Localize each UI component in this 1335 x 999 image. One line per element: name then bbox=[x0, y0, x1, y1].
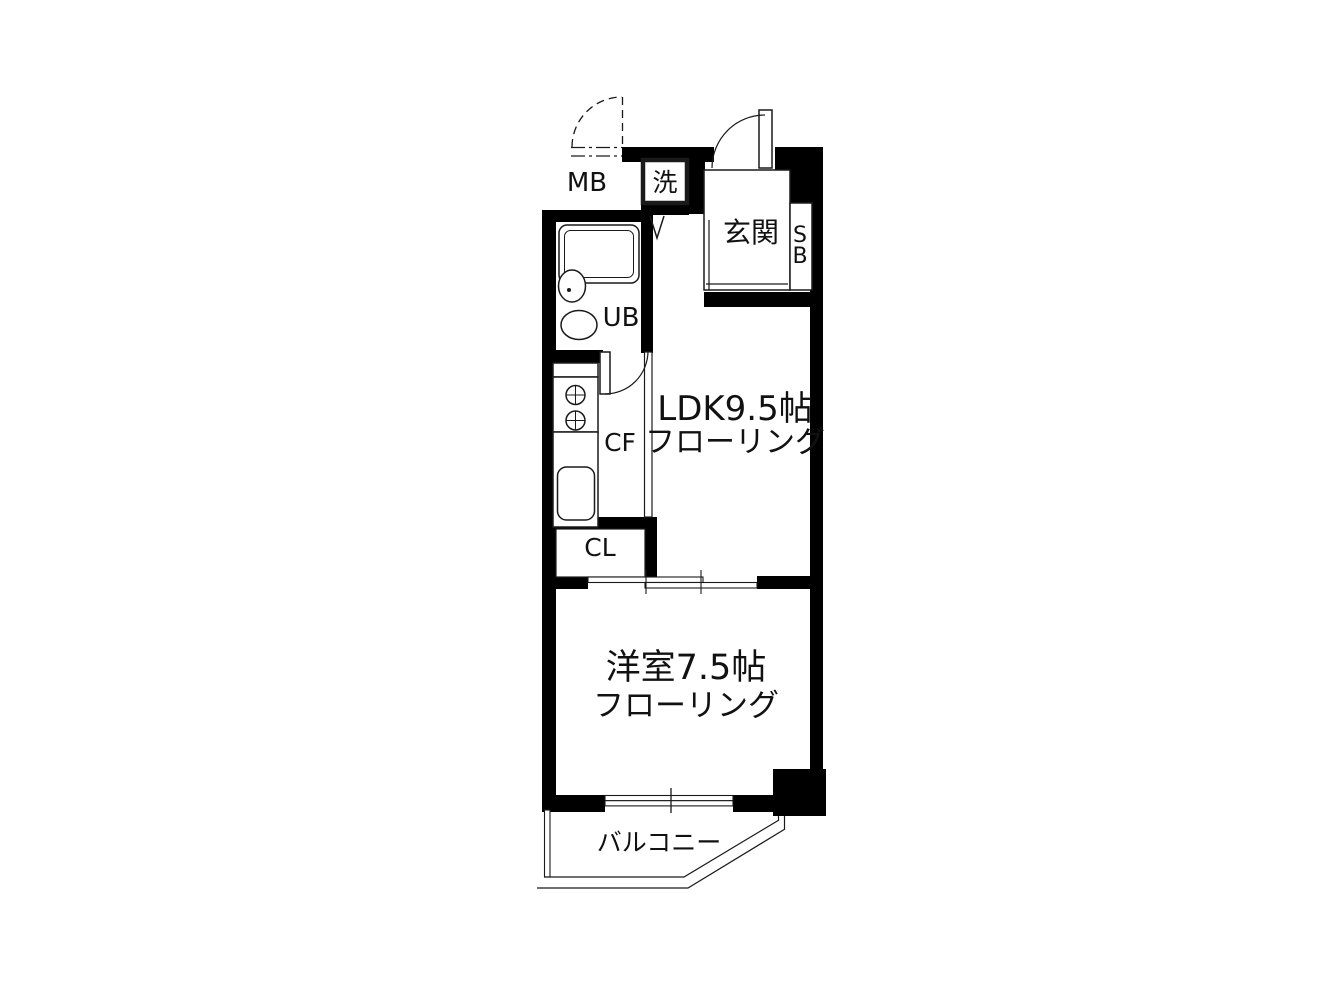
wall-bottom-right-block bbox=[773, 769, 826, 816]
wall-ub-right bbox=[641, 210, 653, 353]
label-ldk-flooring: フローリング bbox=[645, 425, 825, 460]
label-unit-bath: UB bbox=[603, 303, 640, 333]
wall-bottom-left bbox=[542, 795, 605, 812]
wall-washer-right bbox=[687, 158, 705, 214]
label-entrance: 玄関 bbox=[723, 216, 779, 249]
balcony-rail-left bbox=[545, 810, 551, 877]
label-shoe-box-b: B bbox=[792, 244, 807, 269]
label-western-room-flooring: フローリング bbox=[593, 688, 779, 724]
entrance-door-leaf bbox=[759, 110, 772, 168]
bath-sink bbox=[559, 270, 586, 302]
label-kitchen-cf: CF bbox=[604, 428, 636, 457]
label-meter-box: MB bbox=[567, 168, 607, 198]
wall-divider-left bbox=[542, 576, 588, 589]
floor-plan: MB 洗 玄関 S B UB LDK9.5帖 フローリング CF CL 洋室7.… bbox=[0, 0, 1335, 999]
bath-sink-drain bbox=[567, 288, 571, 292]
wall-divider-right bbox=[757, 576, 822, 589]
label-washer: 洗 bbox=[652, 168, 677, 197]
label-western-room-name: 洋室7.5帖 bbox=[606, 648, 767, 688]
wall-ub-top bbox=[542, 210, 653, 222]
floor-plan-svg: MB 洗 玄関 S B UB LDK9.5帖 フローリング CF CL 洋室7.… bbox=[0, 0, 1335, 999]
kitchen-door-leaf bbox=[600, 352, 610, 394]
kitchen-counter-top bbox=[553, 363, 598, 377]
balcony-window-pane-2 bbox=[605, 801, 733, 806]
kitchen-sink bbox=[558, 467, 595, 520]
wall-ub-bottom bbox=[542, 350, 603, 363]
toilet bbox=[561, 311, 597, 340]
label-ldk-name: LDK9.5帖 bbox=[657, 389, 813, 429]
wall-entrance-bottom bbox=[704, 292, 822, 307]
balcony-window-pane-1 bbox=[605, 796, 733, 801]
label-balcony: バルコニー bbox=[597, 828, 722, 857]
label-closet-cl: CL bbox=[584, 533, 615, 562]
